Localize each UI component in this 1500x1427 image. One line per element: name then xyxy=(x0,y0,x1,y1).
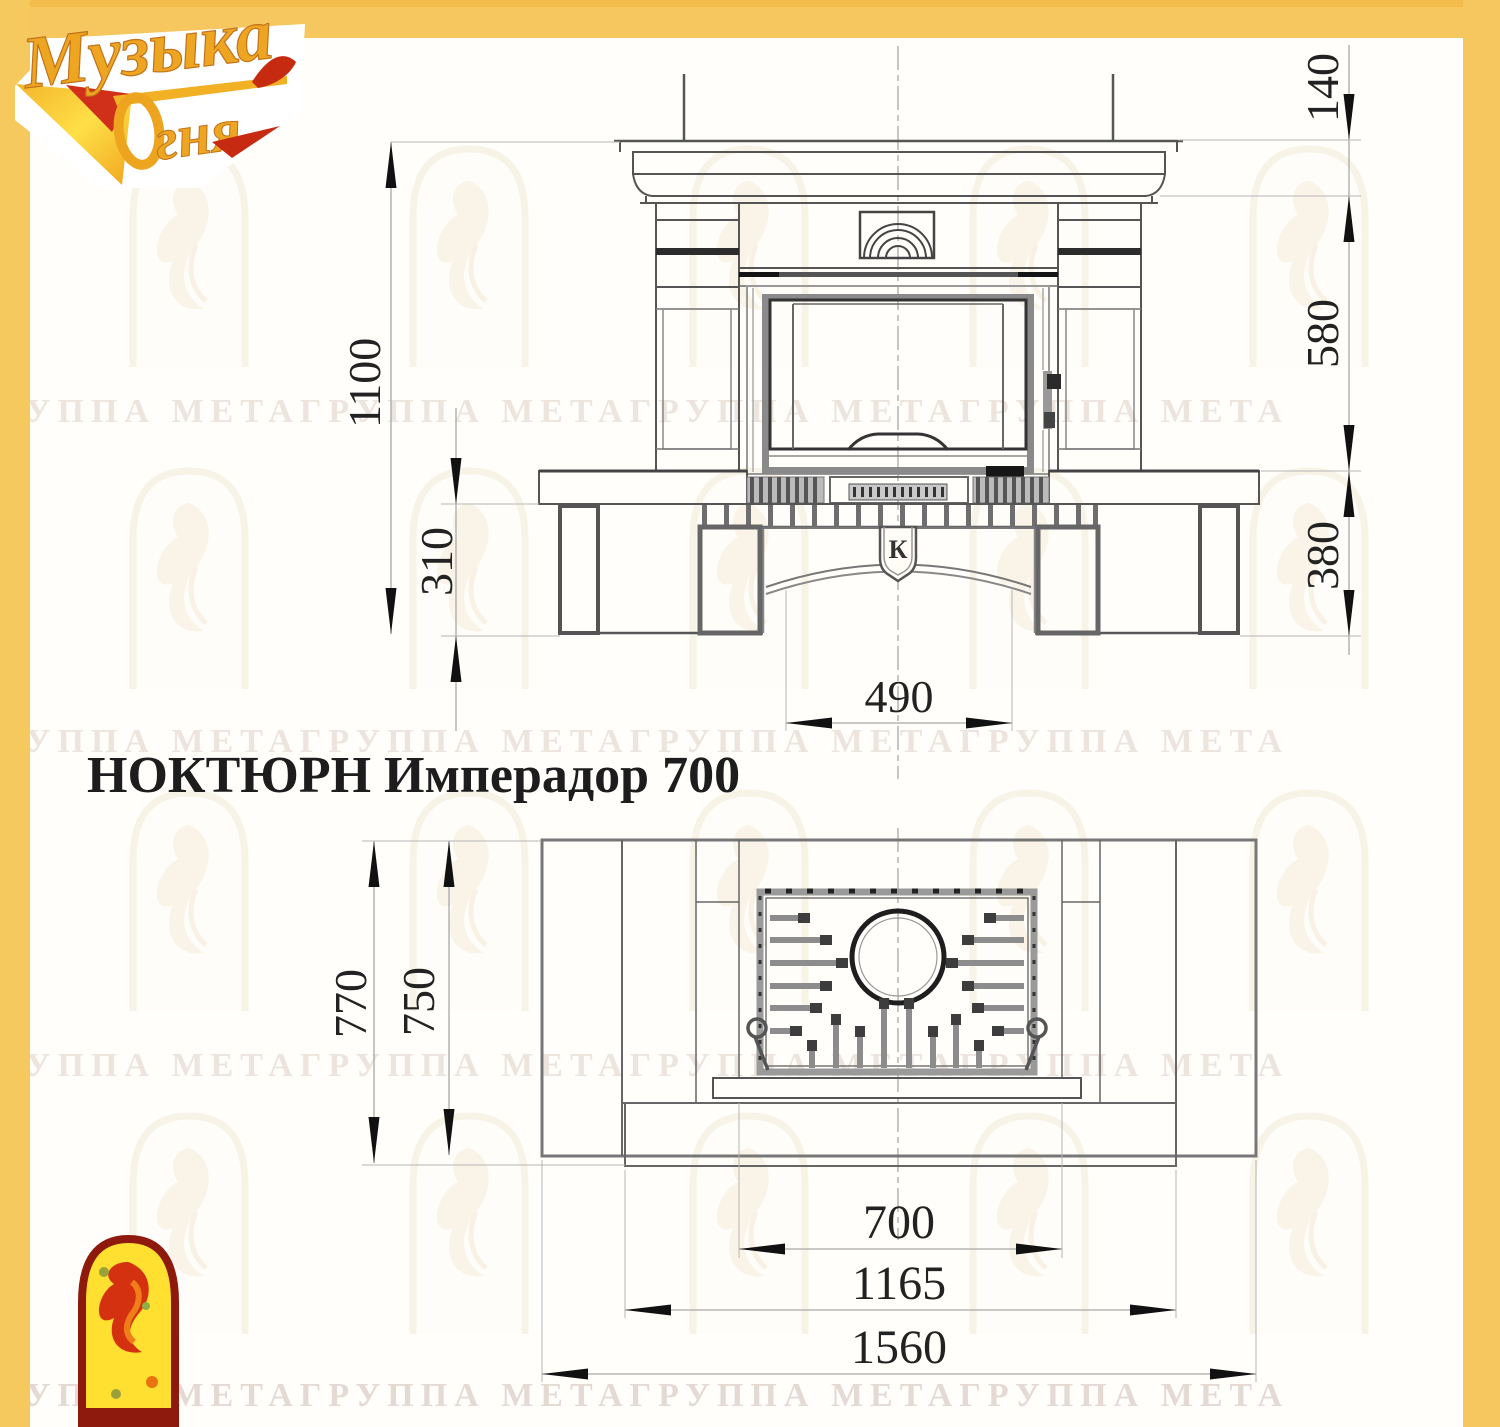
svg-text:1100: 1100 xyxy=(339,338,390,428)
svg-text:580: 580 xyxy=(1297,299,1348,368)
svg-text:490: 490 xyxy=(865,671,934,722)
svg-text:770: 770 xyxy=(325,969,376,1038)
svg-text:1560: 1560 xyxy=(851,1321,947,1374)
svg-text:1165: 1165 xyxy=(852,1257,946,1310)
svg-text:НОКТЮРН Имперадор 700: НОКТЮРН Имперадор 700 xyxy=(87,747,740,804)
svg-text:К: К xyxy=(889,535,908,564)
svg-text:гня: гня xyxy=(151,95,246,172)
svg-text:ГРУППА МЕТАГРУППА МЕТАГРУППА М: ГРУППА МЕТАГРУППА МЕТАГРУППА МЕТАГРУППА … xyxy=(0,393,1289,430)
svg-text:ГРУППА МЕТАГРУППА МЕТАГРУППА М: ГРУППА МЕТАГРУППА МЕТАГРУППА МЕТАГРУППА … xyxy=(0,1047,1289,1084)
svg-text:ГРУППА МЕТАГРУППА МЕТАГРУППА М: ГРУППА МЕТАГРУППА МЕТАГРУППА МЕТАГРУППА … xyxy=(0,1377,1289,1414)
svg-text:700: 700 xyxy=(863,1196,935,1249)
svg-text:140: 140 xyxy=(1297,53,1348,122)
svg-text:750: 750 xyxy=(393,967,444,1036)
svg-text:380: 380 xyxy=(1297,521,1348,590)
svg-text:310: 310 xyxy=(411,527,462,596)
